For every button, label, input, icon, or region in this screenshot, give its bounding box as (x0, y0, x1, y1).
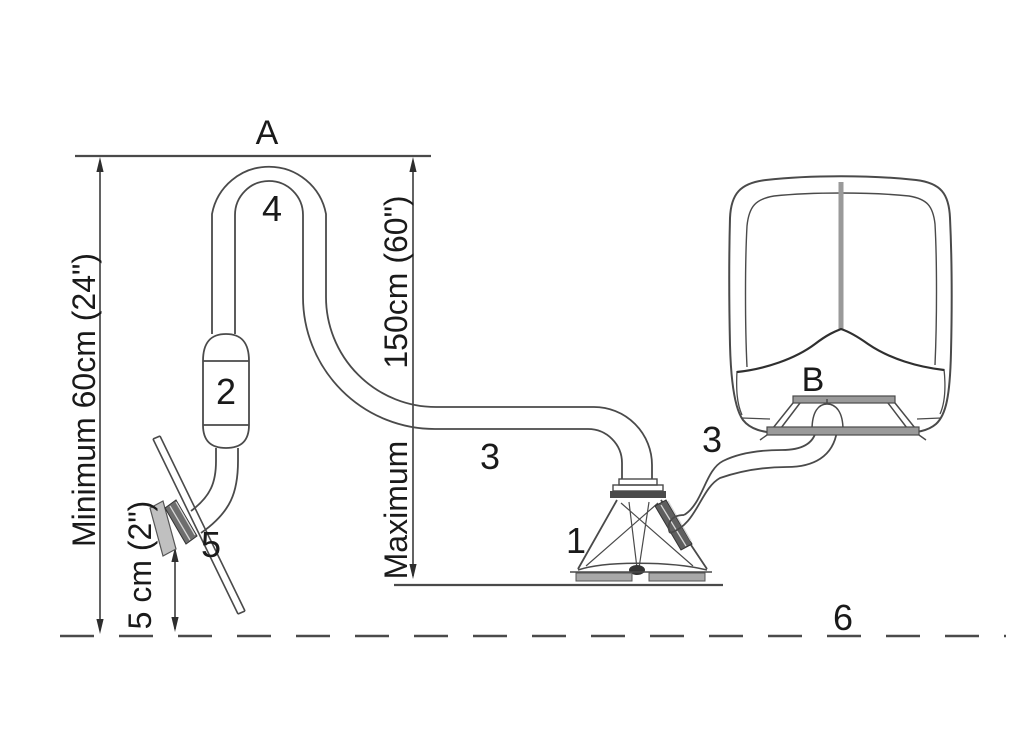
hose-lower-edge (670, 431, 837, 533)
funnel-flange-top (619, 479, 657, 485)
arrow-up-icon (409, 157, 416, 172)
arrow-up-icon (96, 157, 103, 172)
arrow-down-icon (171, 617, 178, 632)
elbow-inner (191, 461, 216, 511)
label-part-3-left: 3 (480, 436, 500, 477)
dryer-lower-corners (737, 369, 945, 419)
label-part-4: 4 (262, 188, 282, 229)
label-part-1: 1 (566, 520, 586, 561)
diagram-canvas: A B 1 2 3 3 4 5 6 Minimum 60cm (24") 150… (0, 0, 1024, 731)
dryer-hose (669, 431, 837, 533)
max-height-word-text: Maximum (378, 441, 414, 580)
label-part-6: 6 (833, 597, 853, 638)
filter-capsule (191, 334, 249, 533)
funnel-flange-mid (613, 485, 663, 491)
text-labels: A B 1 2 3 3 4 5 6 (201, 114, 853, 638)
nozzle-sides (773, 403, 915, 428)
arrow-down-icon (96, 619, 103, 634)
wall-outlet (150, 436, 245, 614)
label-point-b: B (802, 361, 825, 399)
capsule-top-dome (203, 334, 249, 361)
min-height-text: Minimum 60cm (24") (66, 253, 102, 547)
base-foot-right (649, 573, 705, 581)
label-point-a: A (256, 114, 279, 152)
dimension-texts: Minimum 60cm (24") 150cm (60") Maximum 5… (66, 195, 414, 629)
label-part-2: 2 (216, 371, 236, 412)
label-part-3-right: 3 (702, 419, 722, 460)
funnel-flange-band (610, 491, 666, 498)
capsule-bottom-dome (203, 425, 249, 448)
installation-diagram: A B 1 2 3 3 4 5 6 Minimum 60cm (24") 150… (0, 0, 1024, 731)
dryer-cover-split-line (737, 329, 944, 372)
tube-inner-edge (235, 181, 622, 479)
plate-end-tabs (760, 435, 926, 440)
floor-unit (570, 479, 712, 581)
label-part-5: 5 (201, 524, 221, 565)
nozzle-bottom-plate (767, 427, 919, 435)
capsule-neck (216, 448, 238, 461)
hose-end-arch (812, 399, 843, 430)
clearance-text: 5 cm (2") (122, 501, 158, 630)
max-height-value-text: 150cm (60") (378, 195, 414, 368)
base-foot-left (576, 573, 632, 581)
hand-dryer (729, 176, 951, 440)
